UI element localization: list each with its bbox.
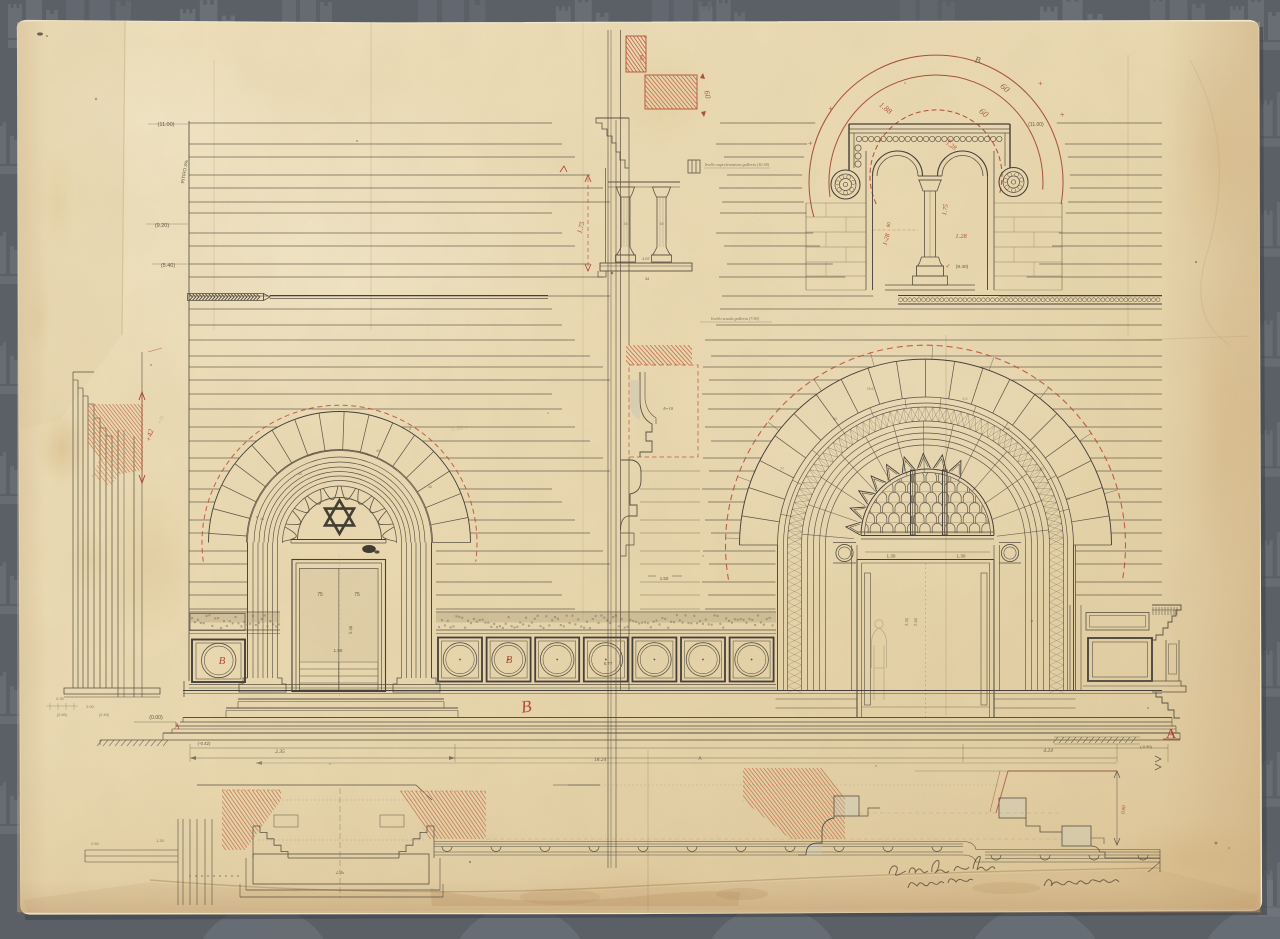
- svg-text:60: 60: [702, 90, 712, 99]
- svg-text:3.35: 3.35: [904, 617, 910, 626]
- svg-text:78.6: 78.6: [867, 387, 874, 391]
- svg-text:A: A: [174, 722, 180, 731]
- svg-text:2.95: 2.95: [336, 871, 345, 876]
- svg-text:0.50: 0.50: [91, 842, 98, 846]
- svg-text:(-0.90): (-0.90): [1140, 744, 1152, 749]
- svg-text:46: 46: [1006, 427, 1010, 431]
- svg-text:1.40: 1.40: [1037, 467, 1044, 471]
- svg-text:(2.60): (2.60): [57, 713, 68, 717]
- svg-text:livello scuola galleria (7.90): livello scuola galleria (7.90): [711, 316, 760, 321]
- svg-text:A: A: [1166, 727, 1177, 742]
- svg-text:38: 38: [623, 222, 627, 226]
- svg-text:1.07: 1.07: [642, 256, 651, 261]
- svg-text:1.50: 1.50: [334, 648, 343, 653]
- svg-text:(11.00): (11.00): [157, 122, 174, 128]
- svg-text:8: 8: [409, 427, 411, 431]
- svg-text:46: 46: [428, 485, 432, 489]
- svg-text:5.38: 5.38: [348, 625, 354, 634]
- svg-text:0.30: 0.30: [56, 697, 63, 701]
- svg-text:34: 34: [645, 277, 649, 281]
- svg-text:40: 40: [1066, 497, 1070, 501]
- svg-text:75: 75: [317, 592, 323, 598]
- svg-text:1.30: 1.30: [957, 554, 966, 559]
- svg-text:(11.00): (11.00): [1028, 122, 1044, 128]
- svg-text:✓: ✓: [945, 264, 950, 270]
- svg-text:livello soprelevazione galleri: livello soprelevazione galleria (10.38): [705, 162, 770, 167]
- svg-text:2.0: 2.0: [963, 397, 968, 401]
- svg-text:(-0.42): (-0.42): [198, 741, 211, 746]
- svg-text:45: 45: [376, 449, 380, 453]
- svg-text:1.30: 1.30: [156, 839, 163, 843]
- svg-text:2.00: 2.00: [86, 705, 93, 709]
- svg-text:B: B: [219, 655, 226, 667]
- svg-text:2.80: 2.80: [913, 617, 919, 626]
- svg-text:18.24: 18.24: [594, 756, 607, 763]
- svg-text:77: 77: [780, 467, 784, 471]
- svg-text:1.28: 1.28: [955, 233, 967, 240]
- svg-text:4.24: 4.24: [1043, 747, 1053, 754]
- svg-text:(0.00): (0.00): [149, 715, 163, 721]
- svg-text:(2.40): (2.40): [99, 713, 110, 717]
- svg-text:1.50: 1.50: [660, 576, 669, 581]
- svg-text:A=10: A=10: [662, 406, 674, 411]
- svg-text:44: 44: [260, 517, 264, 521]
- svg-text:38: 38: [659, 222, 663, 226]
- svg-text:1.30: 1.30: [887, 554, 896, 559]
- svg-text:50: 50: [833, 417, 837, 421]
- svg-text:43: 43: [298, 472, 302, 476]
- svg-text:75: 75: [354, 592, 360, 598]
- svg-text:2.35: 2.35: [275, 749, 285, 755]
- svg-text:B: B: [506, 654, 513, 666]
- svg-text:(8.40): (8.40): [956, 264, 969, 270]
